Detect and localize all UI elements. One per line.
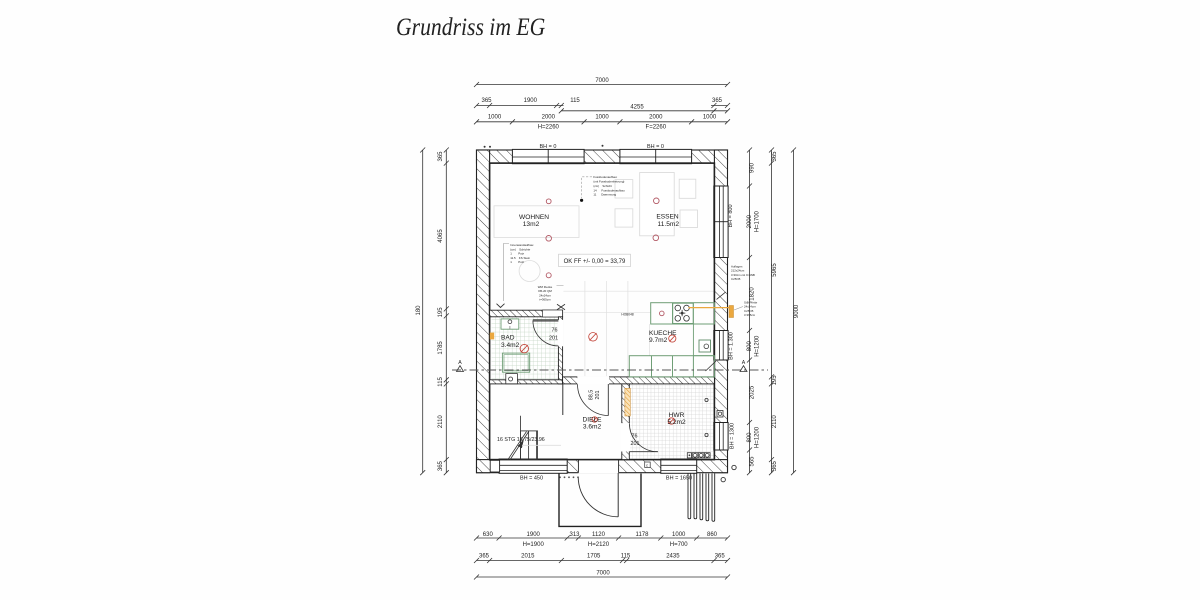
svg-text:7000: 7000 [596,571,610,577]
svg-text:365: 365 [438,151,444,162]
svg-text:1900: 1900 [527,532,541,538]
svg-text:115: 115 [570,98,580,104]
svg-text:2435: 2435 [666,554,680,560]
svg-text:BH = 1650: BH = 1650 [666,476,692,482]
svg-text:H=1200: H=1200 [755,426,761,448]
svg-text:2110: 2110 [772,415,778,429]
svg-text:195: 195 [438,307,444,318]
svg-text:365: 365 [715,554,726,560]
svg-text:201: 201 [549,336,558,342]
svg-text:365: 365 [772,151,778,162]
svg-text:OK FF +/- 0,00 = 33,79: OK FF +/- 0,00 = 33,79 [564,259,626,265]
svg-text:88,5: 88,5 [589,390,595,401]
svg-text:H=2260: H=2260 [538,124,560,130]
svg-text:9.7m2: 9.7m2 [649,337,668,344]
svg-text:A: A [742,360,746,366]
svg-text:630: 630 [483,532,494,538]
svg-text:195: 195 [772,375,778,386]
svg-text:WOHNEN: WOHNEN [519,214,549,221]
svg-text:1000: 1000 [595,114,609,120]
svg-text:800: 800 [747,341,753,352]
svg-text:2000: 2000 [649,114,663,120]
svg-text:Grundriss im EG: Grundriss im EG [396,14,545,42]
svg-text:1900: 1900 [524,98,538,104]
svg-text:4255: 4255 [630,105,644,111]
svg-text:1000: 1000 [488,114,502,120]
svg-text:5.2m2: 5.2m2 [667,419,686,426]
svg-text:76: 76 [552,328,558,334]
svg-text:C25/35: C25/35 [731,277,741,281]
svg-text:BH = 0: BH = 0 [647,144,664,150]
svg-text:860: 860 [707,532,718,538]
svg-text:1785: 1785 [438,341,444,355]
svg-text:HOB048: HOB048 [621,312,633,316]
svg-text:800: 800 [747,432,753,443]
svg-text:1 Putz: 1 Putz [510,260,524,264]
svg-text:1178: 1178 [636,532,650,538]
svg-text:H=1700: H=1700 [755,210,761,232]
svg-text:5965: 5965 [772,263,778,277]
svg-text:13m2: 13m2 [523,221,540,228]
svg-text:1000: 1000 [703,114,717,120]
svg-text:BH = 1300: BH = 1300 [730,423,736,449]
svg-text:BAD: BAD [501,335,515,342]
svg-text:2110: 2110 [438,415,444,429]
svg-text:DIELE: DIELE [582,417,602,424]
svg-text:4065: 4065 [438,229,444,243]
svg-text:16 STG 18.75/23.96: 16 STG 18.75/23.96 [497,437,545,443]
svg-text:11 Daemmung: 11 Daemmung [593,193,616,197]
svg-text:1000: 1000 [672,532,686,538]
svg-text:BH = 800: BH = 800 [728,204,734,227]
svg-text:BH = 0: BH = 0 [540,144,557,150]
svg-text:365: 365 [772,460,778,471]
svg-text:c: c [646,463,648,468]
svg-text:ESSEN: ESSEN [656,213,679,220]
svg-text:11.5m2: 11.5m2 [658,221,680,228]
svg-text:H=1900: H=1900 [523,542,545,548]
svg-text:2000: 2000 [542,114,556,120]
svg-text:BH = 450: BH = 450 [520,476,543,482]
svg-text:3.6m2: 3.6m2 [583,424,602,431]
svg-text:BH = 1.300: BH = 1.300 [729,332,735,360]
svg-text:t=365cm: t=365cm [539,298,551,302]
svg-text:1820: 1820 [750,287,756,301]
svg-text:1120: 1120 [592,532,606,538]
svg-text:Fussbodenaufbau:: Fussbodenaufbau: [593,175,617,179]
svg-text:365: 365 [479,554,490,560]
svg-text:F=2260: F=2260 [646,124,667,130]
svg-text:365: 365 [438,460,444,471]
svg-text:9000: 9000 [794,304,800,318]
svg-text:990: 990 [750,162,756,173]
svg-text:7000: 7000 [595,78,609,84]
svg-text:201: 201 [595,391,601,400]
svg-text:201: 201 [631,441,640,447]
svg-text:565: 565 [750,456,756,467]
svg-text:76: 76 [632,434,638,440]
svg-text:180: 180 [416,305,422,316]
svg-text:313: 313 [569,532,580,538]
svg-text:3.4m2: 3.4m2 [501,342,520,349]
svg-text:1705: 1705 [587,554,601,560]
svg-text:H=1200: H=1200 [755,335,761,357]
svg-text:2000: 2000 [747,214,753,228]
svg-text:2015: 2015 [521,554,535,560]
svg-text:115: 115 [621,554,631,560]
svg-text:KUECHE: KUECHE [649,330,677,337]
svg-text:2025: 2025 [750,385,756,399]
svg-text:Innenwandaufbau:: Innenwandaufbau: [510,243,534,247]
svg-text:H=2120: H=2120 [588,542,610,548]
svg-text:365: 365 [481,98,492,104]
svg-text:H=700: H=700 [670,542,689,548]
svg-text:365: 365 [712,98,723,104]
svg-text:(mit Fussbodenheizung): (mit Fussbodenheizung) [593,180,624,184]
svg-text:A: A [458,360,462,366]
svg-text:HWR: HWR [669,412,685,419]
svg-text:115: 115 [438,376,444,386]
